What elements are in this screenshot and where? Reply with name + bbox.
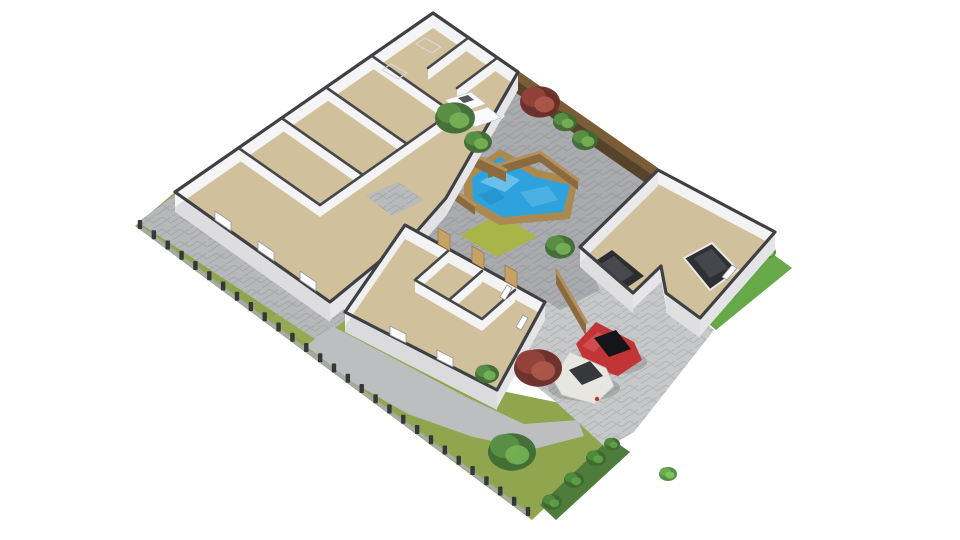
boundary-fence-posts-post xyxy=(235,292,239,301)
tree-lawn-green-small-light xyxy=(484,371,496,381)
boundary-fence-posts-post xyxy=(526,507,530,516)
floorplan-scene-svg xyxy=(0,0,960,540)
boundary-fence-posts-post xyxy=(387,405,391,414)
white-van-taillight xyxy=(595,397,599,401)
tree-fence-green-1-light xyxy=(562,119,574,129)
boundary-fence-posts-post xyxy=(401,415,405,424)
boundary-fence-posts-post xyxy=(360,384,364,393)
bush-corner-light xyxy=(665,471,674,478)
boundary-fence-posts-post xyxy=(346,374,350,383)
tree-fence-vine-red-light xyxy=(534,96,554,112)
boundary-fence-posts-post xyxy=(249,302,253,311)
boundary-fence-posts-post xyxy=(318,353,322,362)
boundary-fence-posts-post xyxy=(415,425,419,434)
tree-fence-green-2-light xyxy=(581,136,594,146)
hedge-bottom-bush-4-light xyxy=(610,442,618,448)
hedge-bottom-bush-3-light xyxy=(593,455,603,463)
boundary-fence-posts-post xyxy=(290,333,294,342)
floorplan-3d-render xyxy=(0,0,960,540)
scene-root xyxy=(135,13,792,520)
boundary-fence-posts-post xyxy=(221,282,225,291)
hedge-bottom-bush-2-light xyxy=(571,477,581,485)
boundary-fence-posts-post xyxy=(263,312,267,321)
boundary-fence-posts-post xyxy=(193,261,197,270)
boundary-fence-posts-post xyxy=(138,220,142,229)
boundary-fence-posts-post xyxy=(166,241,170,250)
boundary-fence-posts-post xyxy=(498,487,502,496)
boundary-fence-posts-post xyxy=(429,435,433,444)
boundary-fence-posts-post xyxy=(443,446,447,455)
tree-courtyard-green-light xyxy=(556,243,571,255)
boundary-fence-posts-post xyxy=(152,230,156,239)
boundary-fence-posts-post xyxy=(179,251,183,260)
boundary-fence-posts-post xyxy=(373,394,377,403)
boundary-fence-posts-post xyxy=(207,271,211,280)
boundary-fence-posts-post xyxy=(304,343,308,352)
tree-planter-1-light xyxy=(449,112,469,128)
boundary-fence-posts-post xyxy=(457,456,461,465)
boundary-fence-posts-post xyxy=(276,323,280,332)
tree-lawn-green-large-light xyxy=(505,445,529,464)
boundary-fence-posts-post xyxy=(332,364,336,373)
boundary-fence-posts-post xyxy=(470,466,474,475)
boundary-fence-posts-post xyxy=(512,497,516,506)
tree-planter-2-light xyxy=(474,138,488,149)
boundary-fence-posts-post xyxy=(484,476,488,485)
tree-lawn-red-light xyxy=(531,361,555,380)
hedge-bottom-bush-1-light xyxy=(549,499,559,507)
